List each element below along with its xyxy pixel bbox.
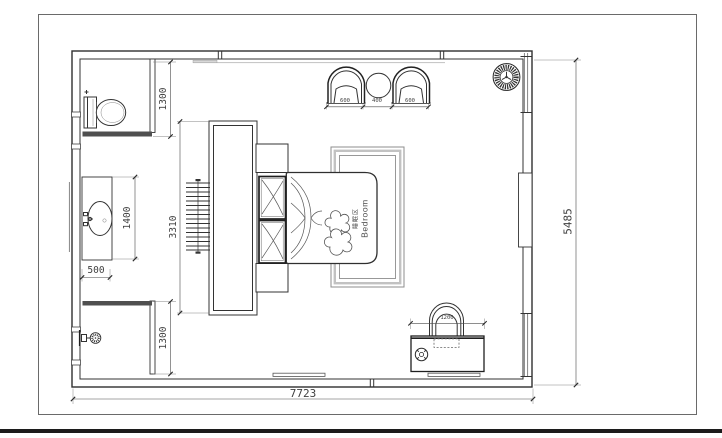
dim-shower-depth: 1300 xyxy=(159,316,169,360)
shower-head xyxy=(80,330,101,346)
bed-room-label: 睡眠区 Bedroom xyxy=(354,186,371,252)
potted-plant xyxy=(493,64,520,91)
pillow-bottom xyxy=(259,221,286,264)
right-wall-windows xyxy=(519,53,533,377)
bottom-wall-window xyxy=(273,373,480,386)
nightstand-top xyxy=(256,144,288,173)
toilet xyxy=(84,90,126,128)
top-wall-window xyxy=(193,52,445,63)
dim-vanity-length: 1400 xyxy=(123,196,133,240)
shower-room xyxy=(80,301,155,374)
nightstand-bottom xyxy=(256,264,288,293)
dim-wc-depth: 1300 xyxy=(159,77,169,121)
dim-armchair-left: 600 xyxy=(331,99,359,106)
desk-lamp xyxy=(415,348,427,360)
dim-overall-width: 7723 xyxy=(281,388,325,399)
left-wall-ticks xyxy=(69,112,80,365)
bed-label-en: Bedroom xyxy=(361,186,370,252)
dim-headboard-wall: 3310 xyxy=(169,205,179,249)
vanity xyxy=(82,177,112,260)
floorplan-canvas: 7723 5485 3310 1400 1300 1300 500 600 40… xyxy=(0,0,722,438)
dim-overall-depth: 5485 xyxy=(563,200,574,244)
louver-hatch xyxy=(186,179,210,254)
wall-pier xyxy=(519,173,533,247)
dim-side-table: 400 xyxy=(363,99,391,106)
desk-area xyxy=(411,303,484,372)
dim-vanity-width: 500 xyxy=(78,266,114,277)
pillow-top xyxy=(259,177,286,220)
side-table xyxy=(366,73,391,98)
dim-armchair-right: 600 xyxy=(396,99,424,106)
dim-desk-width: 1200 xyxy=(431,316,463,323)
wc-room xyxy=(83,59,156,137)
headboard-wall xyxy=(209,121,257,315)
